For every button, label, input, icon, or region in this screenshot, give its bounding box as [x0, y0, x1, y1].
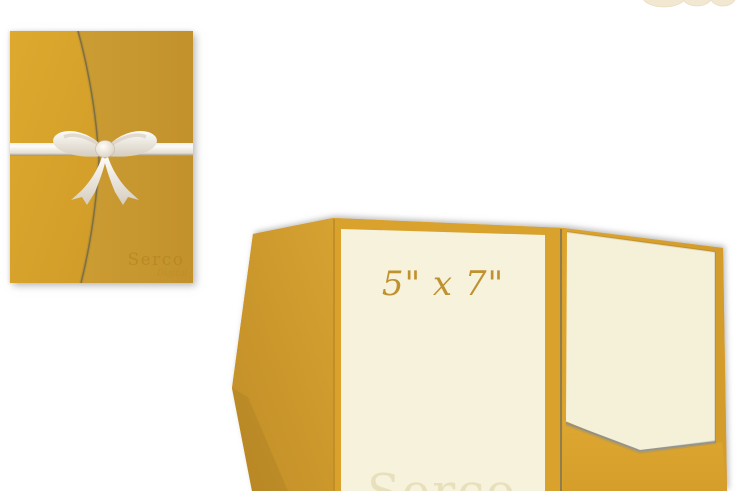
closed-card-front: Serco Digital: [10, 31, 193, 283]
bow-knot: [96, 141, 115, 158]
ornament-shape: [710, 0, 736, 6]
paper-watermark: Serco: [367, 464, 517, 491]
ornament-shape: [643, 0, 685, 7]
product-showcase: Serco Digital: [0, 0, 736, 491]
open-invitation-view: 5" x 7" Serco: [222, 205, 736, 491]
brand-watermark-text: Serco: [127, 250, 184, 270]
closed-invitation-view: Serco Digital: [10, 31, 193, 283]
size-label: 5" x 7": [382, 264, 504, 304]
pocket-insert-card: [566, 232, 715, 452]
open-folder-graphic: 5" x 7" Serco: [222, 205, 736, 491]
ornament-shape: [682, 0, 712, 6]
brand-watermark-tagline: Digital: [156, 269, 188, 279]
cropped-ornament: [642, 0, 736, 10]
